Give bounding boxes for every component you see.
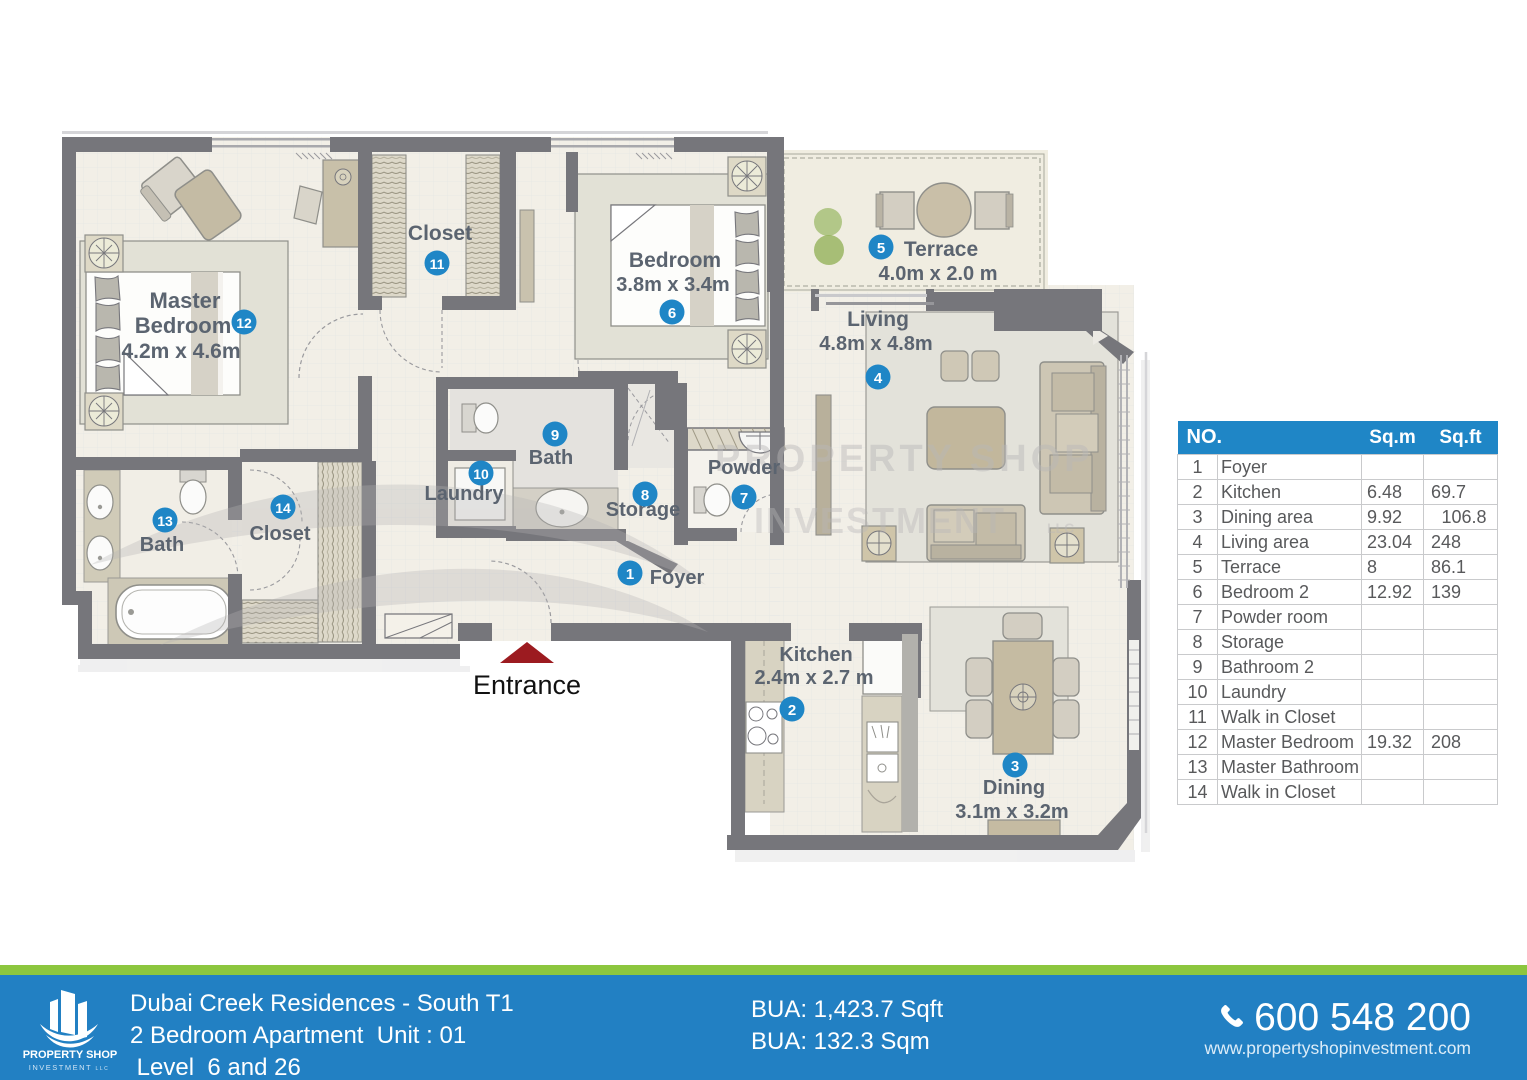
svg-text:Bath: Bath xyxy=(529,447,573,469)
svg-text:Entrance: Entrance xyxy=(473,670,581,700)
svg-text:PROPERTY SHOP: PROPERTY SHOP xyxy=(23,1049,118,1061)
svg-text:4: 4 xyxy=(874,370,883,387)
svg-text:Living: Living xyxy=(847,308,909,331)
svg-text:Powder: Powder xyxy=(708,457,780,479)
svg-text:4.8m x 4.8m: 4.8m x 4.8m xyxy=(819,333,932,355)
svg-text:Bath: Bath xyxy=(140,534,184,556)
svg-text:Foyer: Foyer xyxy=(650,567,705,589)
svg-text:3.8m x 3.4m: 3.8m x 3.4m xyxy=(616,274,729,296)
svg-text:Dining: Dining xyxy=(983,777,1045,799)
svg-text:Bedroom: Bedroom xyxy=(135,313,232,338)
svg-text:7: 7 xyxy=(740,490,748,507)
svg-text:2.4m x 2.7 m: 2.4m x 2.7 m xyxy=(755,667,874,689)
svg-text:Closet: Closet xyxy=(249,523,310,545)
svg-text:8: 8 xyxy=(641,487,649,504)
svg-text:5: 5 xyxy=(877,240,885,257)
svg-text:10: 10 xyxy=(473,466,489,482)
svg-text:3.1m x 3.2m: 3.1m x 3.2m xyxy=(955,801,1068,823)
svg-text:Laundry: Laundry xyxy=(425,483,505,505)
svg-text:Terrace: Terrace xyxy=(904,238,978,261)
svg-text:LLC: LLC xyxy=(1047,520,1074,536)
svg-text:6: 6 xyxy=(668,305,676,322)
svg-text:1: 1 xyxy=(626,566,634,583)
svg-text:2: 2 xyxy=(788,702,796,719)
svg-text:Closet: Closet xyxy=(408,222,472,245)
svg-text:12: 12 xyxy=(236,315,252,331)
svg-text:Bedroom: Bedroom xyxy=(629,249,721,272)
svg-text:INVESTMENT LLC: INVESTMENT LLC xyxy=(29,1063,109,1072)
svg-text:13: 13 xyxy=(157,513,173,529)
svg-text:Master: Master xyxy=(150,288,221,313)
svg-text:14: 14 xyxy=(275,500,291,516)
svg-text:3: 3 xyxy=(1011,758,1019,775)
svg-text:4.0m x 2.0 m: 4.0m x 2.0 m xyxy=(879,263,998,285)
svg-text:9: 9 xyxy=(551,427,559,444)
svg-text:Kitchen: Kitchen xyxy=(779,644,852,666)
svg-text:INVESTMENT: INVESTMENT xyxy=(754,500,1006,541)
svg-text:11: 11 xyxy=(430,256,445,272)
svg-text:4.2m x 4.6m: 4.2m x 4.6m xyxy=(121,340,240,363)
